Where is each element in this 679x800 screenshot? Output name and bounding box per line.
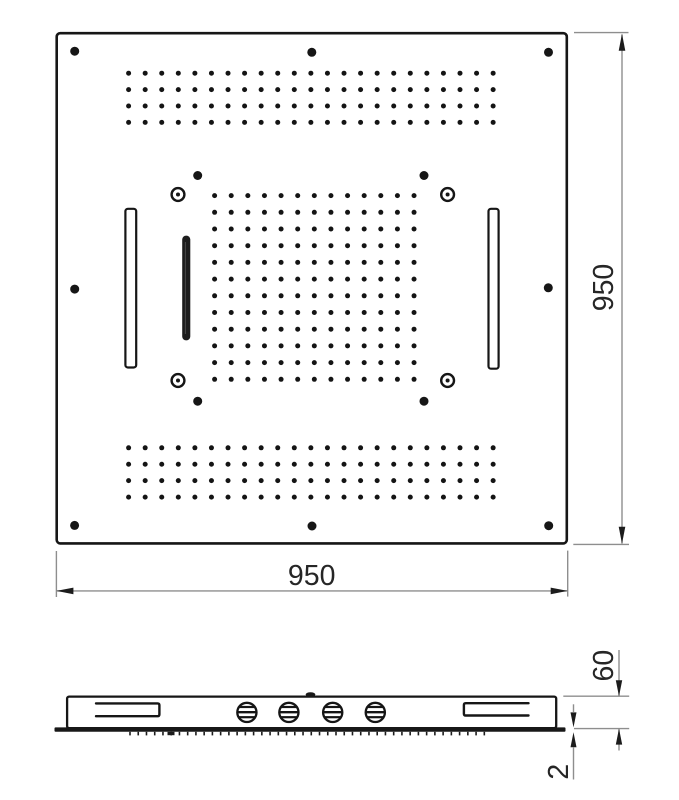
svg-text:950: 950 <box>588 264 620 312</box>
svg-text:60: 60 <box>588 650 620 682</box>
svg-text:2: 2 <box>543 764 575 780</box>
svg-text:950: 950 <box>288 560 336 592</box>
